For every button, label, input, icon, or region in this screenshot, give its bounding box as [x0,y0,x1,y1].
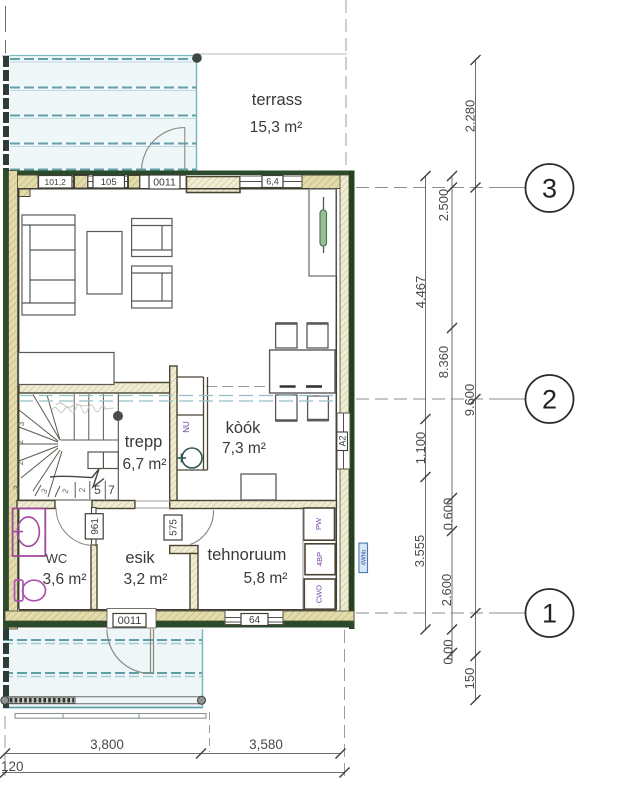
svg-text:101,2: 101,2 [45,177,67,187]
svg-text:2: 2 [78,487,87,492]
svg-text:3,580: 3,580 [249,737,283,752]
svg-text:WC: WC [46,551,68,566]
svg-text:2.600: 2.600 [439,574,454,607]
svg-text:NU: NU [182,421,191,433]
svg-text:3,2 m²: 3,2 m² [124,571,168,588]
svg-text:4.467: 4.467 [413,276,428,309]
svg-text:15,3 m²: 15,3 m² [250,119,303,136]
svg-text:4Whb: 4Whb [361,549,367,565]
svg-text:trepp: trepp [125,433,163,451]
svg-text:kòók: kòók [226,419,262,437]
svg-text:A2: A2 [338,435,348,446]
svg-text:8.360: 8.360 [436,346,451,379]
svg-text:tehnoruum: tehnoruum [208,546,287,564]
svg-text:0011: 0011 [118,615,142,627]
svg-text:105: 105 [101,177,117,188]
svg-text:3.555: 3.555 [412,535,427,568]
svg-text:4BP: 4BP [315,552,324,566]
svg-text:3: 3 [542,174,557,204]
svg-text:2: 2 [16,460,25,465]
svg-text:7,3 m²: 7,3 m² [222,440,266,457]
svg-text:64: 64 [249,615,261,626]
svg-text:150: 150 [462,668,477,690]
svg-text:2: 2 [542,385,557,415]
svg-text:terrass: terrass [252,91,302,109]
svg-text:7: 7 [108,483,115,497]
svg-text:PW: PW [314,517,323,530]
svg-text:0011: 0011 [153,177,176,189]
svg-text:esik: esik [125,549,155,567]
svg-text:3,6 m²: 3,6 m² [43,571,87,588]
svg-text:1: 1 [542,599,557,629]
svg-text:961: 961 [90,518,101,535]
svg-text:0.00: 0.00 [441,639,456,664]
svg-text:5: 5 [94,483,101,497]
svg-text:575: 575 [169,519,180,536]
svg-text:3: 3 [17,421,26,426]
svg-text:5,8 m²: 5,8 m² [244,570,288,587]
svg-text:CWO: CWO [315,585,324,603]
svg-text:2.500: 2.500 [436,189,451,222]
svg-text:2.280: 2.280 [463,100,478,133]
svg-text:6,7 m²: 6,7 m² [123,456,167,473]
svg-text:2: 2 [16,439,25,444]
svg-text:6,4: 6,4 [266,177,279,187]
svg-text:3,800: 3,800 [90,737,124,752]
svg-text:0.600: 0.600 [441,498,456,531]
svg-text:120: 120 [1,759,24,774]
svg-text:1.100: 1.100 [413,432,428,465]
svg-text:9.600: 9.600 [462,384,477,417]
